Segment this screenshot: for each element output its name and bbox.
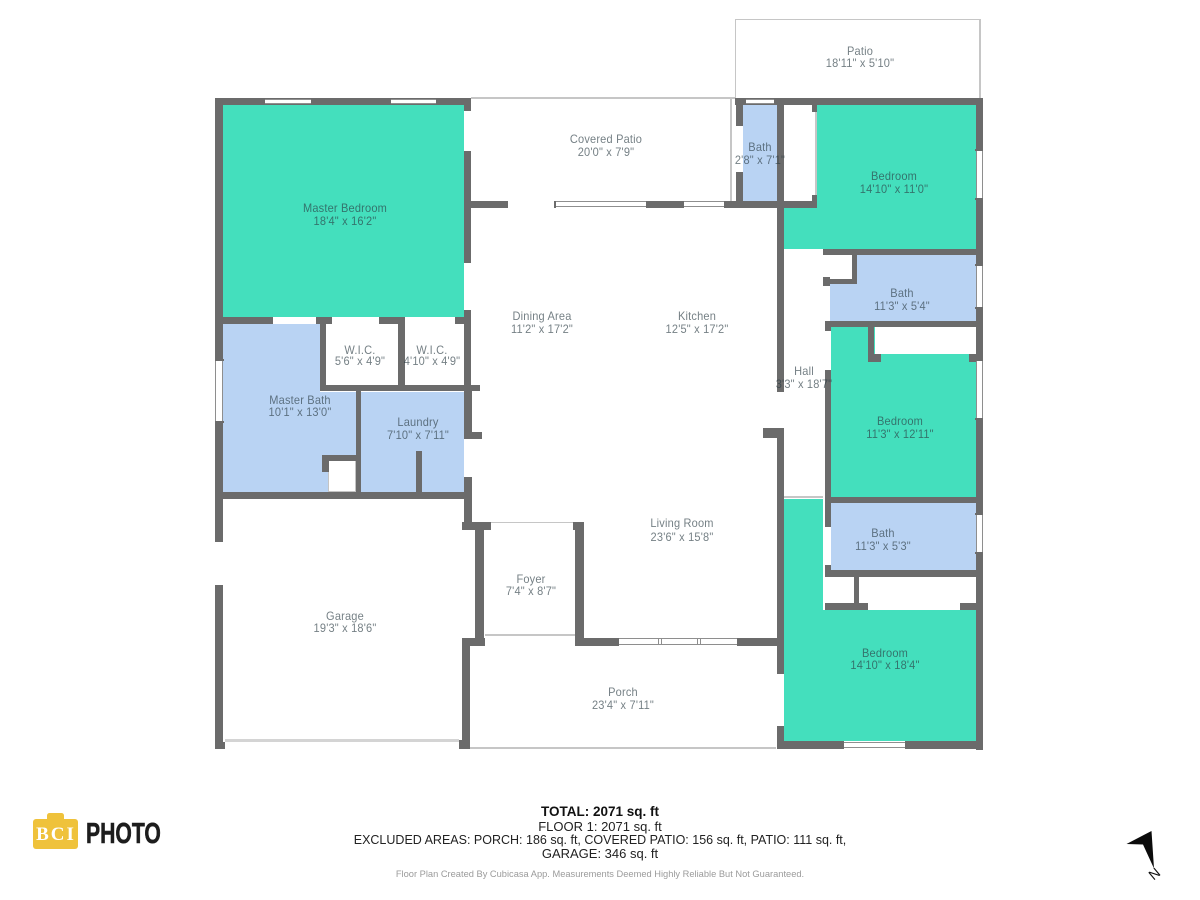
svg-text:N: N xyxy=(1145,864,1163,883)
